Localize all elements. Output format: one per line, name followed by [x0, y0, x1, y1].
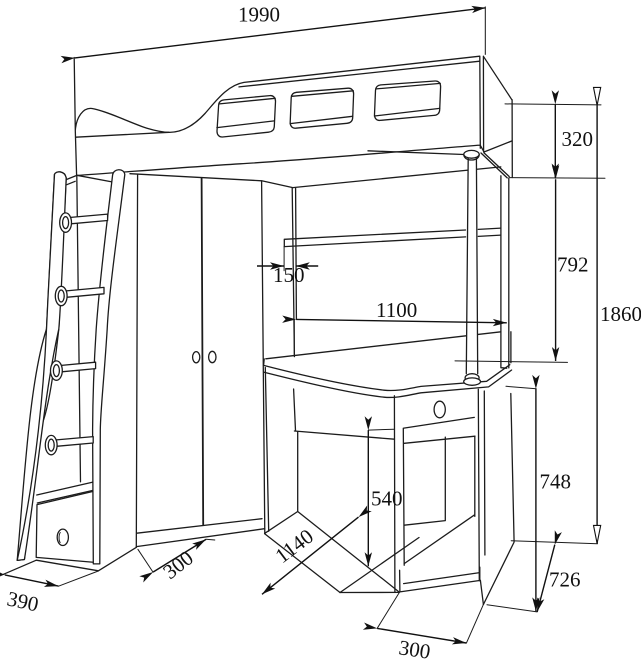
svg-text:300: 300 — [397, 635, 432, 660]
svg-text:150: 150 — [273, 263, 305, 287]
svg-text:726: 726 — [549, 568, 581, 592]
svg-text:792: 792 — [557, 253, 589, 277]
svg-text:320: 320 — [562, 127, 594, 151]
svg-text:1100: 1100 — [376, 298, 417, 322]
svg-text:1860: 1860 — [600, 302, 641, 326]
svg-text:1990: 1990 — [238, 3, 280, 27]
svg-text:748: 748 — [540, 470, 572, 494]
svg-text:540: 540 — [371, 487, 403, 511]
